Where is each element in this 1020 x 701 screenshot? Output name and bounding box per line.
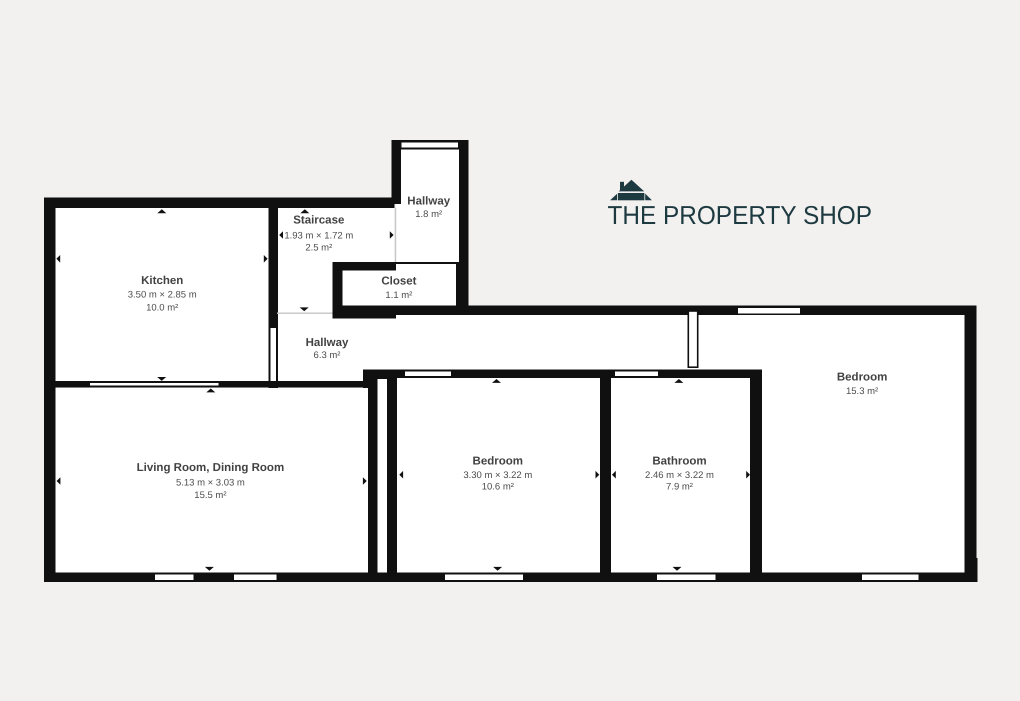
svg-text:15.3 m²: 15.3 m² xyxy=(846,386,878,397)
svg-text:10.0 m²: 10.0 m² xyxy=(146,303,178,314)
svg-text:2.46 m × 3.22 m: 2.46 m × 3.22 m xyxy=(645,470,714,481)
svg-text:Bedroom: Bedroom xyxy=(473,455,523,467)
svg-text:Hallway: Hallway xyxy=(407,195,450,207)
svg-text:1.8 m²: 1.8 m² xyxy=(415,209,442,220)
svg-text:6.3 m²: 6.3 m² xyxy=(314,350,341,361)
svg-text:2.5 m²: 2.5 m² xyxy=(305,242,332,253)
svg-text:15.5 m²: 15.5 m² xyxy=(194,490,226,501)
svg-text:Closet: Closet xyxy=(381,276,416,288)
svg-text:Hallway: Hallway xyxy=(306,337,349,349)
svg-text:THE PROPERTY SHOP: THE PROPERTY SHOP xyxy=(608,200,873,230)
svg-text:3.50 m × 2.85 m: 3.50 m × 2.85 m xyxy=(128,290,197,301)
svg-text:1.1 m²: 1.1 m² xyxy=(385,290,412,301)
svg-text:1.93 m × 1.72 m: 1.93 m × 1.72 m xyxy=(284,231,353,242)
svg-text:Bathroom: Bathroom xyxy=(652,455,706,467)
svg-text:Staircase: Staircase xyxy=(293,215,344,227)
svg-text:5.13 m × 3.03 m: 5.13 m × 3.03 m xyxy=(176,477,245,488)
svg-text:Bedroom: Bedroom xyxy=(837,371,887,383)
svg-text:3.30 m × 3.22 m: 3.30 m × 3.22 m xyxy=(463,470,532,481)
svg-text:Kitchen: Kitchen xyxy=(141,275,183,287)
svg-text:10.6 m²: 10.6 m² xyxy=(482,482,514,493)
svg-text:7.9 m²: 7.9 m² xyxy=(666,482,693,493)
svg-text:Living Room, Dining Room: Living Room, Dining Room xyxy=(137,462,285,474)
